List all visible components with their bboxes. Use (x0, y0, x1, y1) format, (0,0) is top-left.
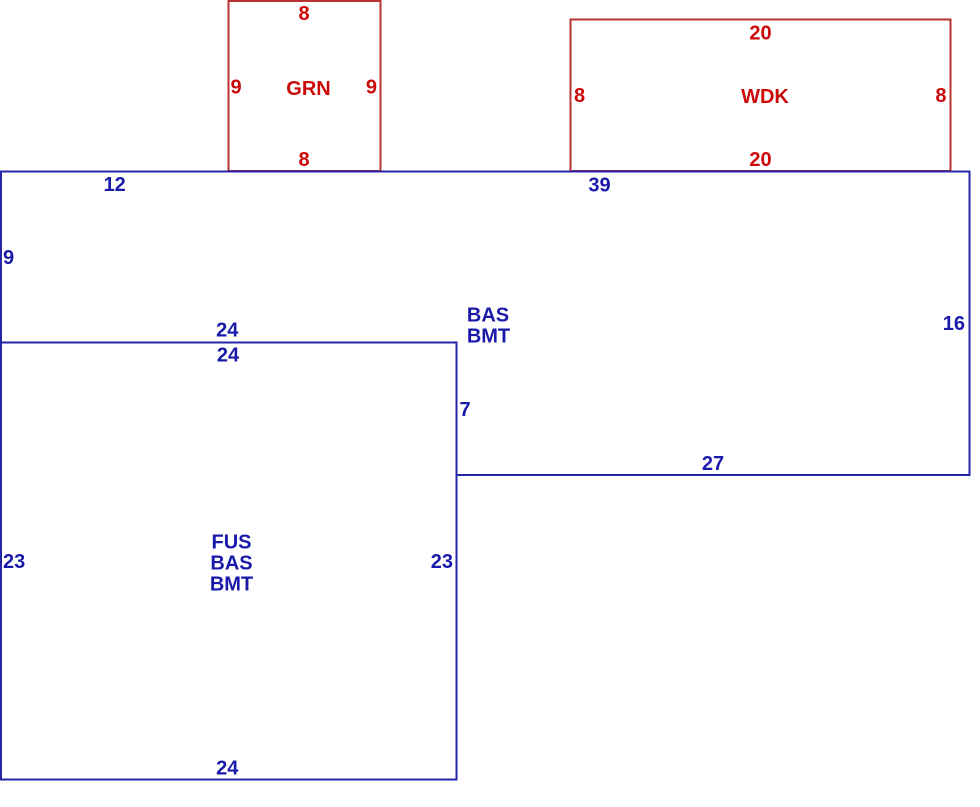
svg-text:20: 20 (749, 23, 771, 45)
svg-text:9: 9 (231, 77, 242, 99)
svg-text:8: 8 (298, 149, 309, 171)
svg-text:9: 9 (3, 247, 14, 269)
svg-text:23: 23 (431, 551, 453, 573)
svg-text:BAS: BAS (210, 553, 252, 575)
svg-text:23: 23 (3, 551, 25, 573)
svg-text:BAS: BAS (467, 305, 509, 327)
svg-text:8: 8 (935, 85, 946, 107)
svg-text:7: 7 (460, 399, 471, 421)
svg-text:20: 20 (749, 149, 771, 171)
svg-text:27: 27 (702, 453, 724, 475)
svg-text:WDK: WDK (741, 86, 789, 108)
svg-text:24: 24 (217, 345, 240, 367)
svg-text:12: 12 (104, 174, 126, 196)
svg-text:39: 39 (588, 175, 610, 197)
svg-text:FUS: FUS (212, 532, 252, 554)
svg-text:16: 16 (943, 313, 965, 335)
svg-text:GRN: GRN (286, 78, 330, 100)
svg-text:8: 8 (298, 3, 309, 25)
svg-text:9: 9 (366, 77, 377, 99)
svg-text:24: 24 (216, 320, 239, 342)
svg-text:BMT: BMT (467, 326, 510, 348)
svg-text:24: 24 (216, 757, 239, 779)
svg-text:BMT: BMT (210, 574, 253, 596)
svg-text:8: 8 (574, 85, 585, 107)
